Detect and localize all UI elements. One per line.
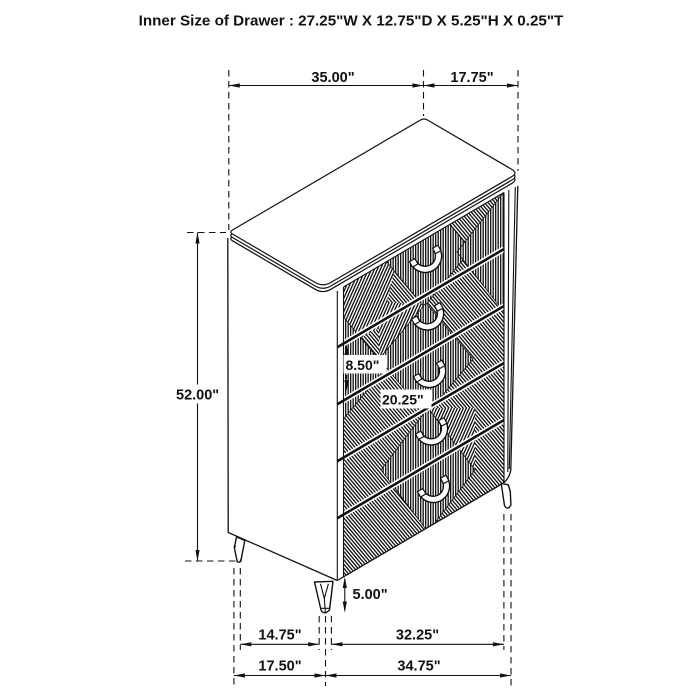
svg-text:35.00": 35.00" <box>311 70 354 86</box>
svg-text:52.00": 52.00" <box>176 388 219 404</box>
svg-text:5.00": 5.00" <box>353 587 388 603</box>
svg-text:20.25": 20.25" <box>382 392 424 408</box>
svg-text:14.75": 14.75" <box>258 628 301 644</box>
svg-text:32.25": 32.25" <box>396 628 439 644</box>
svg-text:Inner Size of Drawer : 27.25"W: Inner Size of Drawer : 27.25"W X 12.75"D… <box>139 13 564 30</box>
svg-text:17.75": 17.75" <box>450 70 493 86</box>
svg-text:17.50": 17.50" <box>258 659 301 675</box>
svg-text:34.75": 34.75" <box>397 659 440 675</box>
svg-text:8.50": 8.50" <box>346 357 380 373</box>
